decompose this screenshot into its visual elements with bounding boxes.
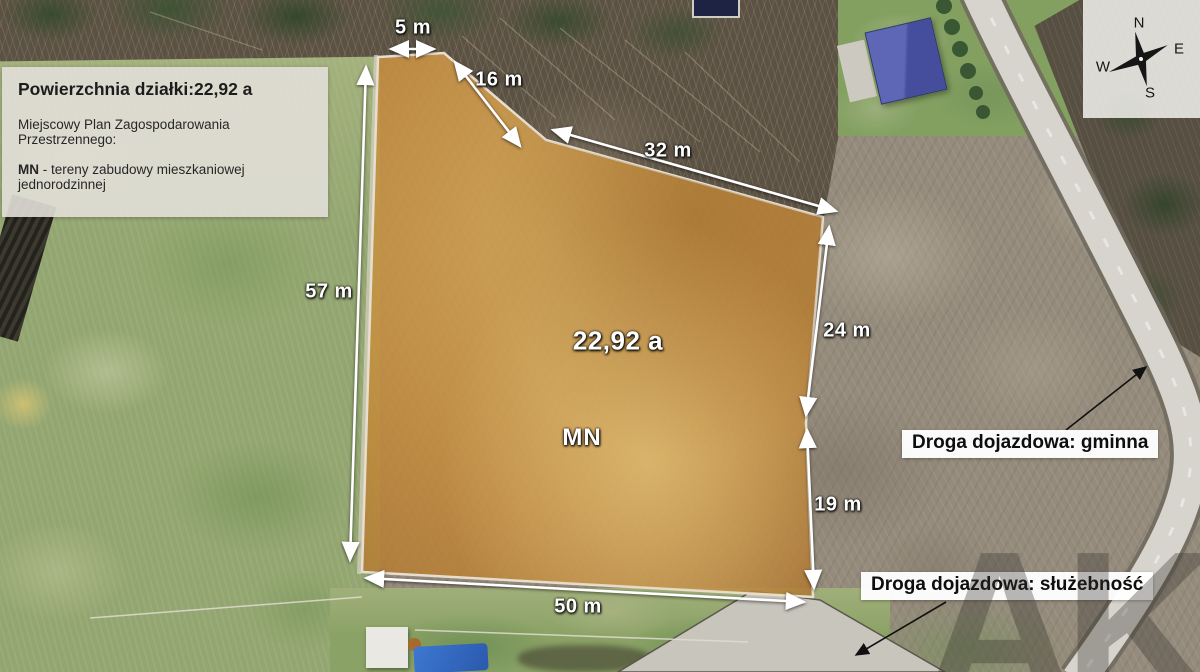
- parcel-zone-label: MN: [562, 424, 601, 452]
- measurement-label-32m: 32 m: [644, 140, 692, 163]
- fence-lines: [90, 597, 748, 642]
- parcel-area-title: Powierzchnia działki:22,92 a: [18, 79, 314, 100]
- zone-code: MN: [18, 162, 39, 177]
- info-box: Powierzchnia działki:22,92 a Miejscowy P…: [2, 67, 328, 217]
- measurement-label-16m: 16 m: [475, 69, 523, 92]
- measurement-label-5m: 5 m: [395, 17, 431, 40]
- compass-letter-e: E: [1174, 41, 1184, 58]
- aerial-photo: 5 m 16 m 32 m 57 m 24 m 19 m 50 m 22,92 …: [0, 0, 1200, 672]
- parcel-area-label: 22,92 a: [573, 326, 663, 357]
- compass-letter-n: N: [1134, 15, 1145, 32]
- compass-letter-w: W: [1096, 59, 1110, 76]
- zone-desc: - tereny zabudowy mieszkaniowej jednorod…: [18, 162, 245, 192]
- road-label-sluzebnosc: Droga dojazdowa: służebność: [861, 572, 1153, 600]
- compass-letter-s: S: [1145, 85, 1155, 102]
- zone-description-line: MN - tereny zabudowy mieszkaniowej jedno…: [18, 162, 314, 192]
- measurement-label-50m: 50 m: [554, 596, 602, 619]
- road-label-gminna: Droga dojazdowa: gminna: [902, 430, 1158, 458]
- measurement-label-24m: 24 m: [823, 320, 871, 343]
- measurement-label-19m: 19 m: [814, 494, 862, 517]
- zoning-plan-line: Miejscowy Plan Zagospodarowania Przestrz…: [18, 117, 314, 147]
- pointer-gminna: [1066, 367, 1146, 430]
- measurement-label-57m: 57 m: [305, 281, 353, 304]
- compass-star: [1102, 26, 1175, 94]
